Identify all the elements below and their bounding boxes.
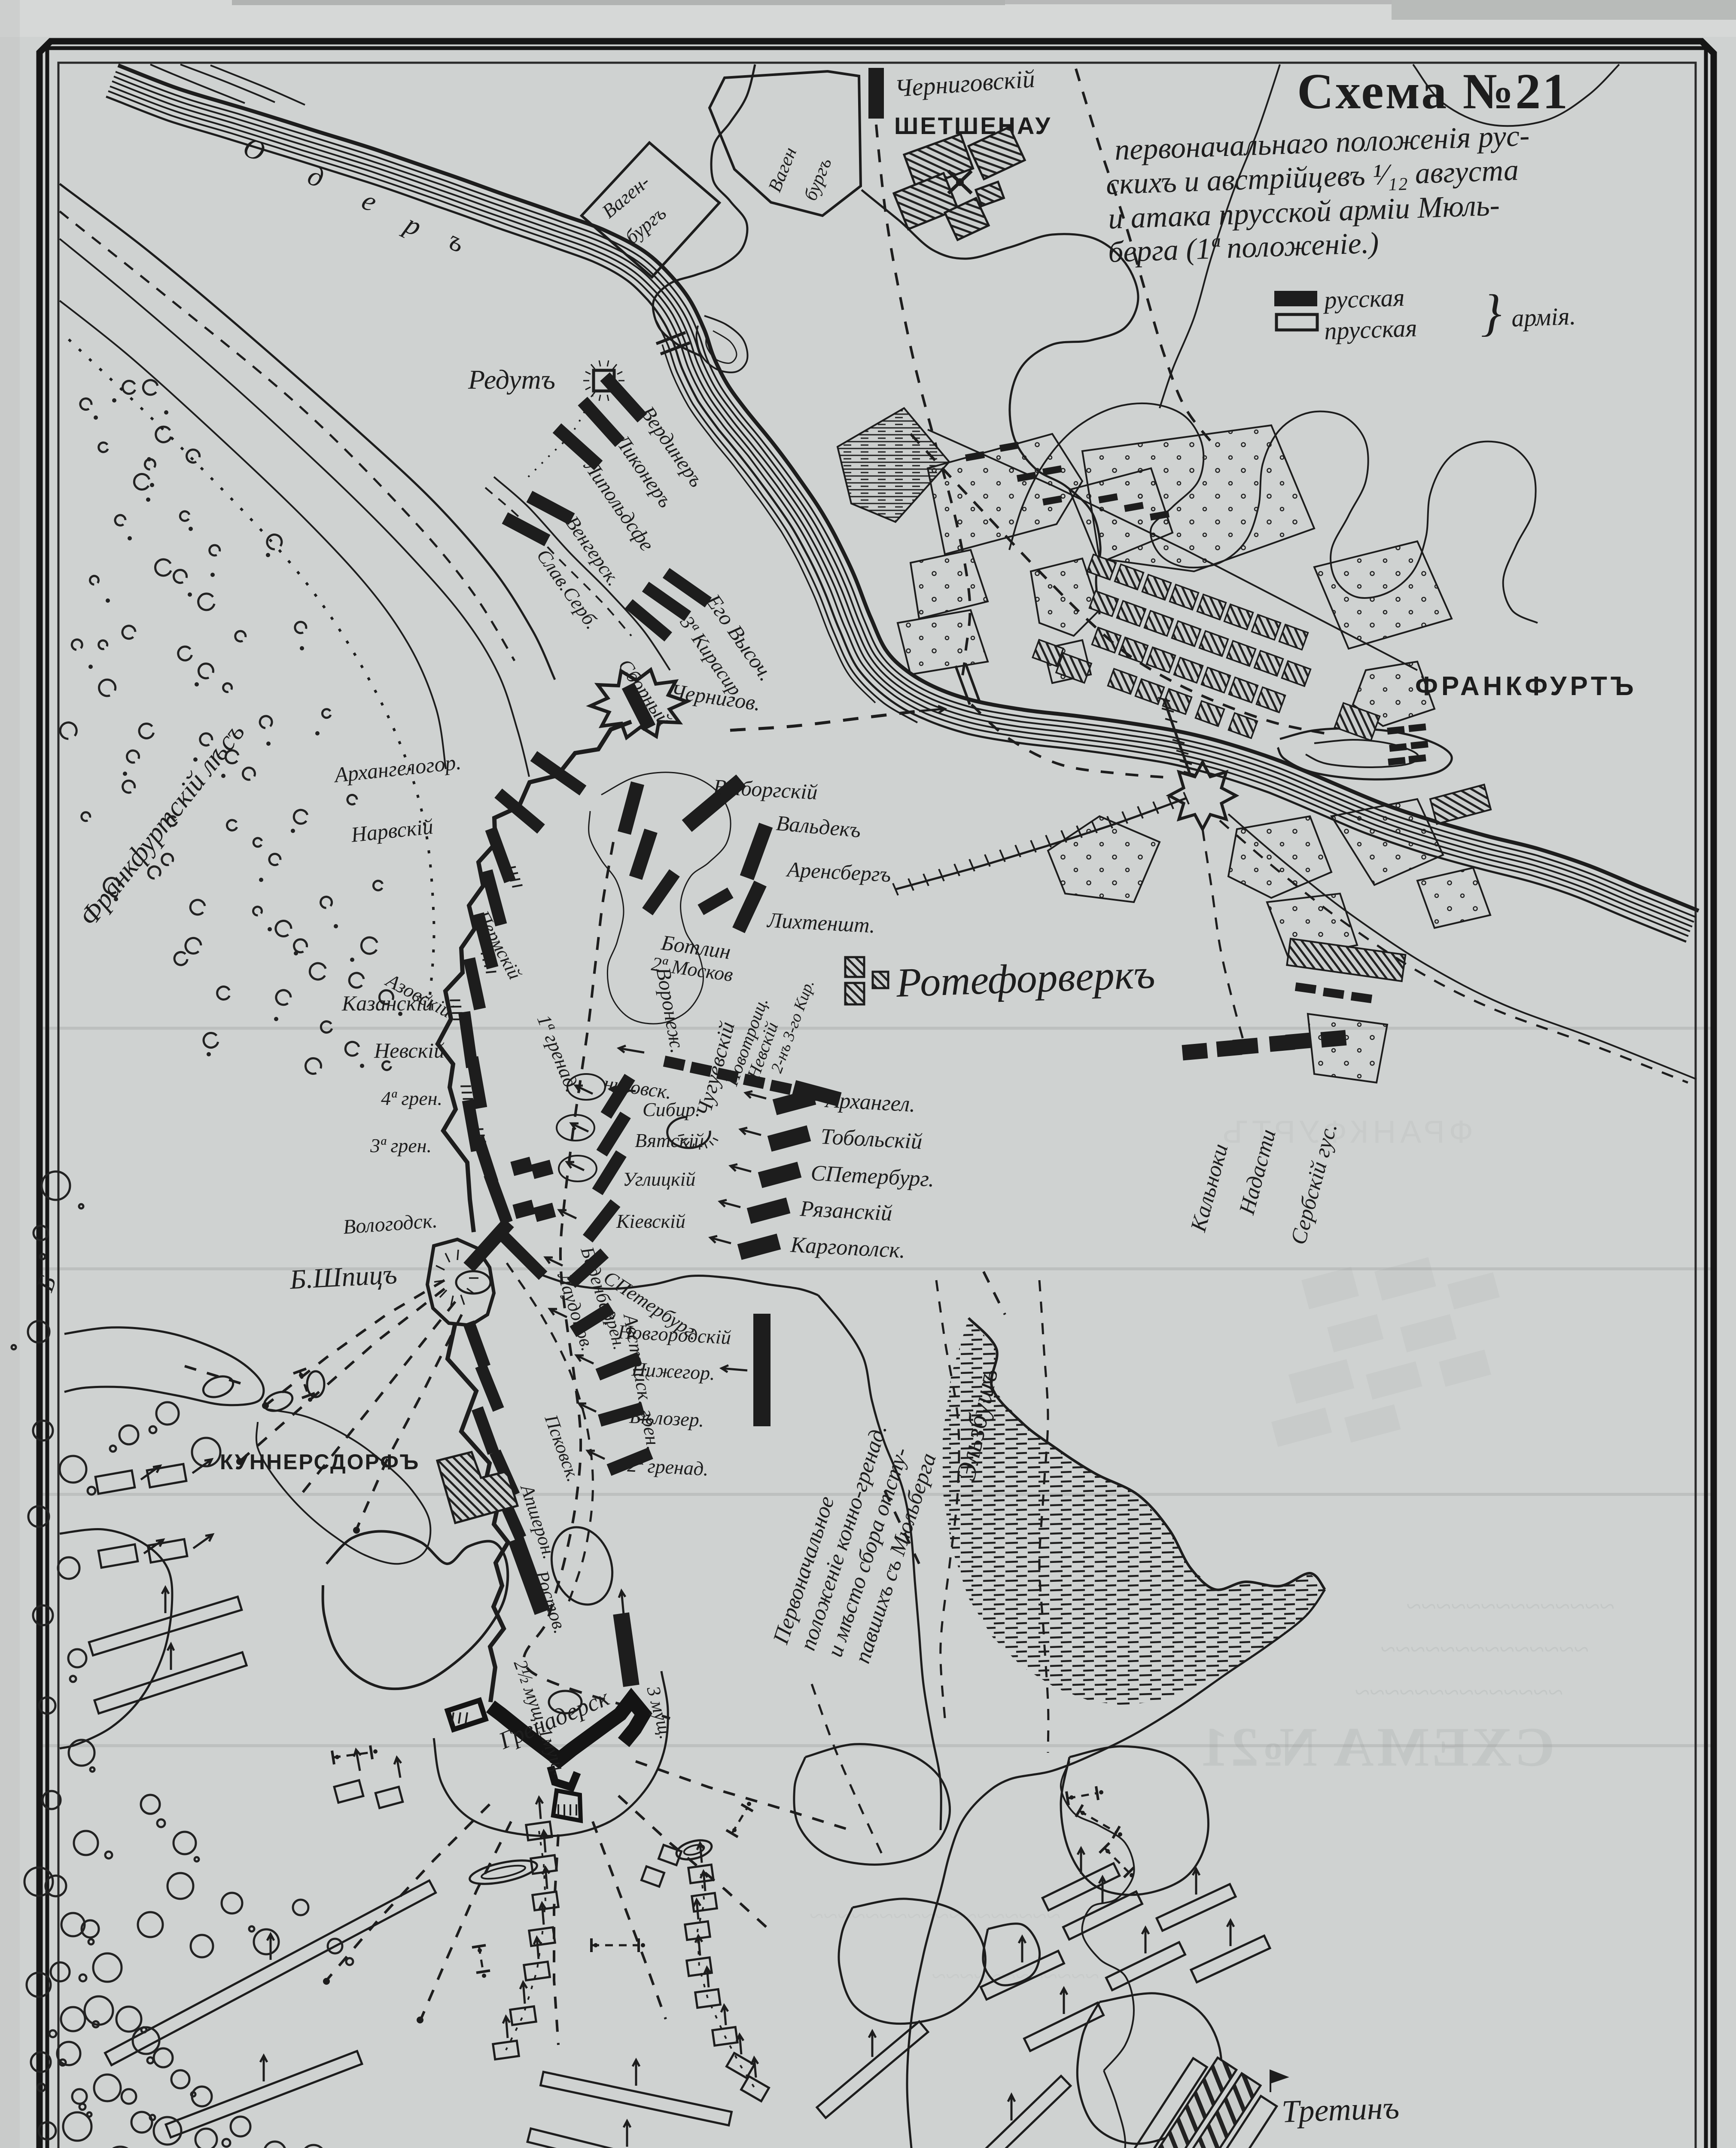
svg-text:3ª грен.: 3ª грен. (370, 1135, 432, 1156)
svg-text:Б.Шпицъ: Б.Шпицъ (289, 1259, 398, 1295)
svg-text:Бѣлозер.: Бѣлозер. (628, 1405, 704, 1431)
svg-text:~~~~~~~~~~~~~~: ~~~~~~~~~~~~~~ (1355, 1677, 1563, 1707)
svg-text:~~~~~~~~~~~~~~: ~~~~~~~~~~~~~~ (1381, 1634, 1589, 1664)
svg-text:армія.: армія. (1511, 302, 1576, 332)
svg-text:Углицкій: Углицкій (623, 1168, 695, 1190)
svg-text:Третинъ: Третинъ (1281, 2090, 1400, 2130)
svg-text:}: } (1481, 284, 1501, 341)
svg-text:Невскій: Невскій (374, 1038, 445, 1062)
svg-text:Кіевскій: Кіевскій (616, 1210, 685, 1232)
svg-text:прусская: прусская (1324, 314, 1417, 345)
svg-text:ФРАНКФУРТЪ: ФРАНКФУРТЪ (1415, 671, 1637, 701)
svg-text:ШЕТШЕНАУ: ШЕТШЕНАУ (894, 112, 1052, 139)
svg-text:Казанскій: Казанскій (341, 991, 433, 1015)
svg-text:Редутъ: Редутъ (468, 364, 555, 395)
svg-text:русская: русская (1322, 284, 1405, 314)
svg-text:2ª гренад.: 2ª гренад. (627, 1454, 709, 1480)
svg-text:Схема №21: Схема №21 (1297, 63, 1569, 119)
svg-text:Рязанскій: Рязанскій (799, 1196, 892, 1226)
svg-text:Архангел.: Архангел. (824, 1088, 916, 1117)
svg-text:~~~~~~~~~~~~~~: ~~~~~~~~~~~~~~ (1407, 1591, 1615, 1621)
svg-text:CXEMA №21: CXEMA №21 (1198, 1716, 1555, 1778)
svg-text:4ª грен.: 4ª грен. (381, 1087, 442, 1109)
svg-text:Нижегор.: Нижегор. (630, 1358, 716, 1384)
svg-text:Ротефорверкъ: Ротефорверкъ (895, 951, 1156, 1006)
